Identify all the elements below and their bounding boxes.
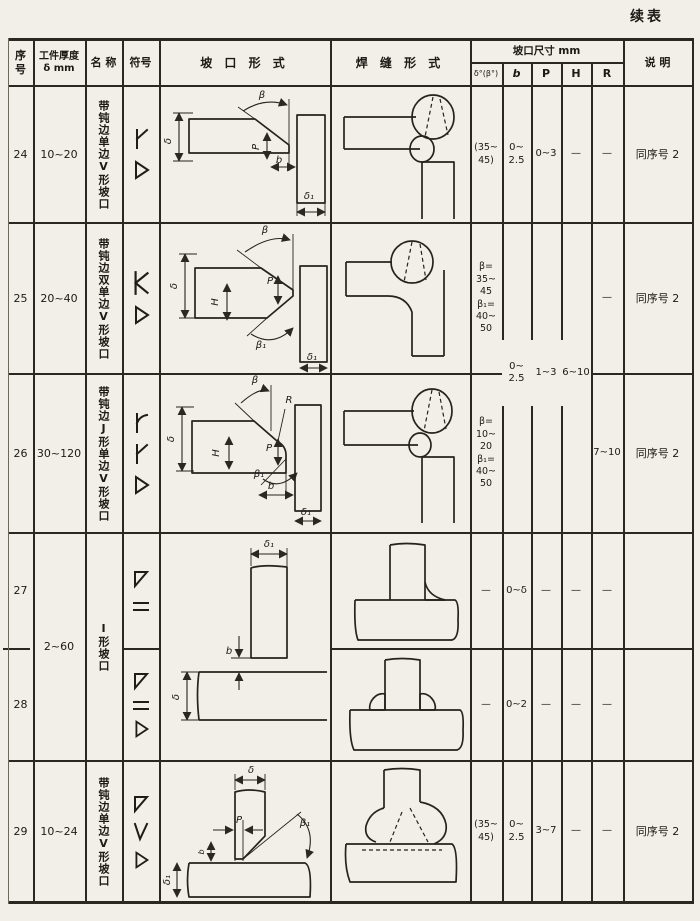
row24-thickness: 10~20 — [33, 87, 85, 222]
row24-name: 带钝边单边V形坡口 — [85, 87, 122, 222]
row24-name-text: 带钝边单边V形坡口 — [98, 100, 109, 210]
row27-28-name-text: I形坡口 — [98, 622, 109, 672]
dim-label-beta1: β₁ — [299, 818, 310, 829]
dim-label-h: H — [210, 298, 221, 306]
row29-weld-diagram — [330, 762, 470, 901]
row27-dim-p: — — [531, 534, 561, 648]
row27-weld-diagram — [330, 534, 470, 648]
triangle-symbol-icon — [130, 793, 152, 815]
header-dim-b: b — [502, 62, 531, 85]
row28-dim-r: — — [591, 650, 623, 760]
row28-dim-p: — — [531, 650, 561, 760]
row25-thickness: 20~40 — [33, 224, 85, 373]
row27-28-groove-diagram: δ₁ b δ — [159, 534, 330, 760]
fillet-symbol-icon — [130, 158, 152, 182]
row25-26-dim-b: 0~ 2.5 — [502, 340, 531, 406]
row29-dim-h: — — [561, 762, 591, 901]
dim-label-delta1: δ₁ — [304, 191, 314, 202]
row24-note: 同序号 2 — [623, 87, 692, 222]
row27-note — [623, 534, 692, 648]
row25-26-dim-h: 6~10 — [561, 340, 591, 406]
dim-label-h: H — [211, 449, 222, 457]
header-dim-h: H — [561, 62, 591, 85]
header-thickness: 工件厚度 δ mm — [33, 41, 85, 85]
header-groove-form: 坡 口 形 式 — [159, 41, 330, 85]
header-symbol: 符号 — [122, 41, 159, 85]
row28-weld-diagram — [330, 650, 470, 760]
row25-symbols — [122, 224, 159, 373]
row27-no: 27 — [8, 534, 33, 648]
square-groove-symbol-icon — [130, 697, 152, 713]
row24-no: 24 — [8, 87, 33, 222]
row29-dim-b: 0~ 2.5 — [502, 762, 531, 901]
header-no: 序 号 — [8, 41, 33, 85]
row29-name: 带钝边单边V形坡口 — [85, 762, 122, 901]
dim-label-p: P — [266, 443, 273, 454]
row25-26-dim-p: 1~3 — [531, 340, 561, 406]
row26-thickness: 30~120 — [33, 375, 85, 532]
dim-label-delta1: δ₁ — [264, 539, 274, 550]
dim-label-p: P — [267, 276, 274, 287]
row25-groove-diagram: δ β H P β₁ δ₁ — [159, 224, 330, 373]
single-V-symbol-icon — [130, 821, 152, 843]
header-dim-angle: δ°(β°) — [470, 62, 502, 85]
row26-no: 26 — [8, 375, 33, 532]
row28-dim-b: 0~2 — [502, 650, 531, 760]
dim-label-delta1: δ₁ — [307, 352, 317, 363]
row26-weld-diagram — [330, 375, 470, 532]
dim-label-r: R — [286, 395, 293, 406]
row28-dim-h: — — [561, 650, 591, 760]
row29-symbols — [122, 762, 159, 901]
header-groove-dims: 坡口尺寸 mm — [470, 41, 623, 62]
header-dim-r: R — [591, 62, 623, 85]
row26-dim-r: 7~10 — [591, 375, 623, 532]
fillet-symbol-icon — [130, 473, 152, 497]
dim-label-delta1: δ₁ — [162, 875, 173, 885]
row25-name: 带钝边双单边V形坡口 — [85, 224, 122, 373]
dim-label-b: b — [197, 849, 206, 854]
table-right-border — [692, 38, 694, 904]
row27-28-thickness: 2~60 — [33, 534, 85, 760]
row26-note: 同序号 2 — [623, 375, 692, 532]
row27-dim-angle: — — [470, 534, 502, 648]
dim-label-p: P — [236, 815, 243, 826]
row24-groove-diagram: δ β P b δ₁ — [159, 87, 330, 222]
dim-label-delta: δ — [163, 138, 174, 144]
row26-name-text: 带钝边J形单边V形坡口 — [98, 386, 109, 522]
square-groove-symbol-icon — [130, 597, 152, 615]
dim-label-delta: δ — [169, 283, 180, 289]
header-dim-p: P — [531, 62, 561, 85]
dim-label-b: b — [226, 646, 232, 657]
fillet-symbol-icon — [130, 303, 152, 327]
row25-note: 同序号 2 — [623, 224, 692, 373]
row26-dim-angle: β= 10~ 20 β₁= 40~ 50 — [470, 375, 502, 532]
row27-symbols — [122, 534, 159, 648]
row29-dim-p: 3~7 — [531, 762, 561, 901]
row29-note: 同序号 2 — [623, 762, 692, 901]
row28-no: 28 — [8, 650, 33, 760]
row24-symbols — [122, 87, 159, 222]
single-bevel-with-root-face-symbol-icon — [130, 442, 152, 466]
row25-name-text: 带钝边双单边V形坡口 — [98, 238, 109, 360]
row27-28-name: I形坡口 — [85, 534, 122, 760]
row24-weld-diagram — [330, 87, 470, 222]
row25-weld-diagram — [330, 224, 470, 373]
continued-table-label: 续表 — [630, 6, 664, 26]
row24-dim-b: 0~ 2.5 — [502, 87, 531, 222]
row29-dim-r: — — [591, 762, 623, 901]
j-groove-symbol-icon — [130, 411, 152, 435]
row24-dim-h: — — [561, 87, 591, 222]
dim-label-beta: β — [251, 375, 259, 386]
single-bevel-with-root-face-symbol-icon — [130, 127, 152, 151]
dim-label-beta1: β₁ — [253, 469, 264, 480]
row26-groove-diagram: δ β R H P β₁ b δ₁ — [159, 375, 330, 532]
dim-label-beta: β — [261, 225, 269, 236]
row26-name: 带钝边J形单边V形坡口 — [85, 375, 122, 532]
header-weld-form: 焊 缝 形 式 — [330, 41, 470, 85]
row27-dim-b: 0~δ — [502, 534, 531, 648]
row24-dim-r: — — [591, 87, 623, 222]
scanned-standard-table-page: 续表 序 号 工件厚度 δ mm 名 称 符号 坡 口 形 式 焊 缝 形 式 … — [0, 0, 700, 921]
row25-dim-angle: β= 35~ 45 β₁= 40~ 50 — [470, 224, 502, 373]
fillet-symbol-icon — [130, 718, 152, 740]
row29-name-text: 带钝边单边V形坡口 — [98, 777, 109, 887]
dim-label-p: P — [251, 143, 262, 150]
dim-label-b: b — [276, 155, 282, 166]
row29-thickness: 10~24 — [33, 762, 85, 901]
row28-dim-angle: — — [470, 650, 502, 760]
dim-label-beta: β — [258, 90, 266, 101]
double-bevel-K-symbol-icon — [130, 270, 152, 296]
dim-label-b: b — [268, 481, 274, 492]
row27-dim-r: — — [591, 534, 623, 648]
row28-note — [623, 650, 692, 760]
dim-label-delta1: δ₁ — [301, 507, 311, 518]
row27-dim-h: — — [561, 534, 591, 648]
header-name: 名 称 — [85, 41, 122, 85]
triangle-symbol-icon — [130, 670, 152, 692]
header-note: 说 明 — [623, 41, 692, 85]
row26-symbols — [122, 375, 159, 532]
dim-label-beta1: β₁ — [255, 340, 266, 351]
row25-no: 25 — [8, 224, 33, 373]
row29-dim-angle: (35~ 45) — [470, 762, 502, 901]
table-bottom-border — [8, 901, 692, 904]
fillet-symbol-icon — [130, 849, 152, 871]
dim-label-delta: δ — [171, 694, 182, 700]
dim-label-delta: δ — [166, 436, 177, 442]
row24-dim-angle: (35~ 45) — [470, 87, 502, 222]
row29-groove-diagram: δ β₁ P b δ₁ — [159, 762, 330, 901]
row24-dim-p: 0~3 — [531, 87, 561, 222]
row25-dim-r: — — [591, 224, 623, 373]
dim-label-delta: δ — [248, 765, 254, 776]
row28-symbols — [122, 650, 159, 760]
row29-no: 29 — [8, 762, 33, 901]
triangle-symbol-icon — [130, 568, 152, 590]
